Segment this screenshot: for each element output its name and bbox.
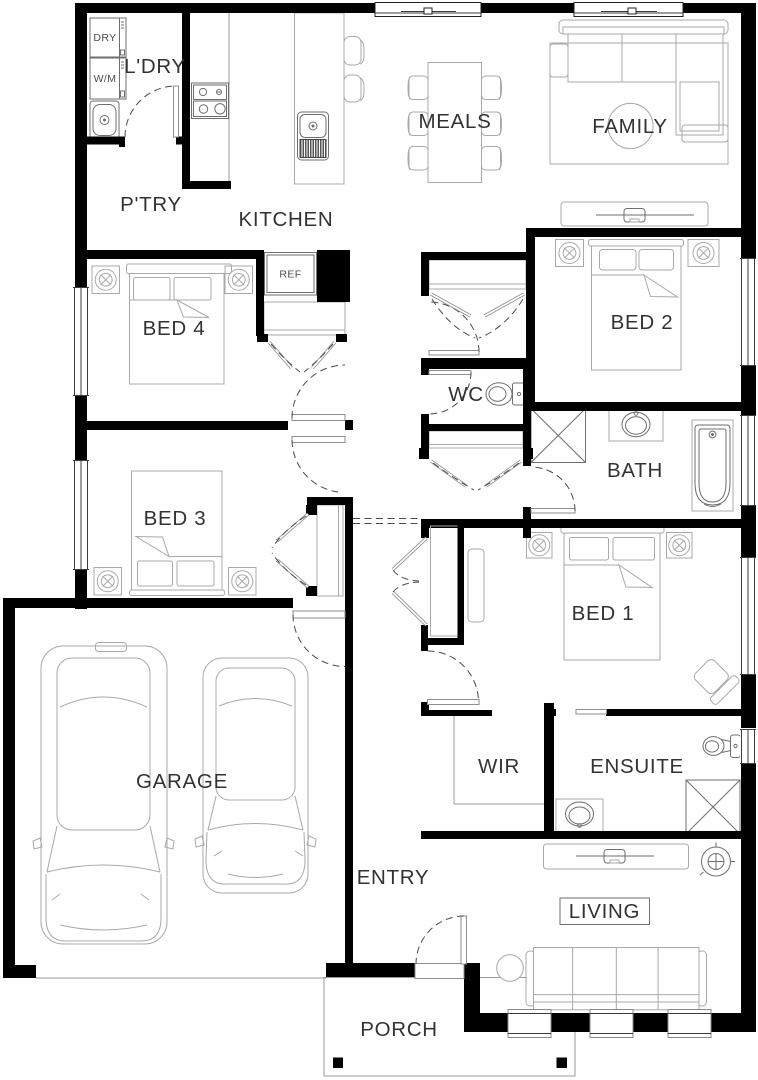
svg-text:MEALS: MEALS [419, 110, 492, 133]
svg-text:BED 3: BED 3 [144, 507, 207, 530]
svg-text:ENSUITE: ENSUITE [590, 755, 684, 778]
svg-text:WIR: WIR [478, 755, 520, 778]
svg-text:BATH: BATH [607, 459, 663, 482]
svg-text:REF: REF [279, 269, 301, 281]
svg-text:PORCH: PORCH [360, 1018, 438, 1041]
svg-text:FAMILY: FAMILY [592, 115, 668, 138]
svg-text:DRY: DRY [93, 32, 116, 44]
svg-text:BED 1: BED 1 [572, 602, 635, 625]
svg-text:ENTRY: ENTRY [357, 866, 430, 889]
svg-text:LIVING: LIVING [569, 900, 640, 923]
svg-text:KITCHEN: KITCHEN [239, 208, 334, 231]
svg-text:GARAGE: GARAGE [136, 770, 228, 793]
svg-text:P'TRY: P'TRY [120, 193, 182, 216]
svg-text:BED 2: BED 2 [611, 311, 674, 334]
svg-text:BED 4: BED 4 [143, 317, 206, 340]
svg-text:L'DRY: L'DRY [124, 55, 186, 78]
svg-text:WC: WC [448, 383, 484, 406]
svg-text:W/M: W/M [94, 73, 117, 85]
